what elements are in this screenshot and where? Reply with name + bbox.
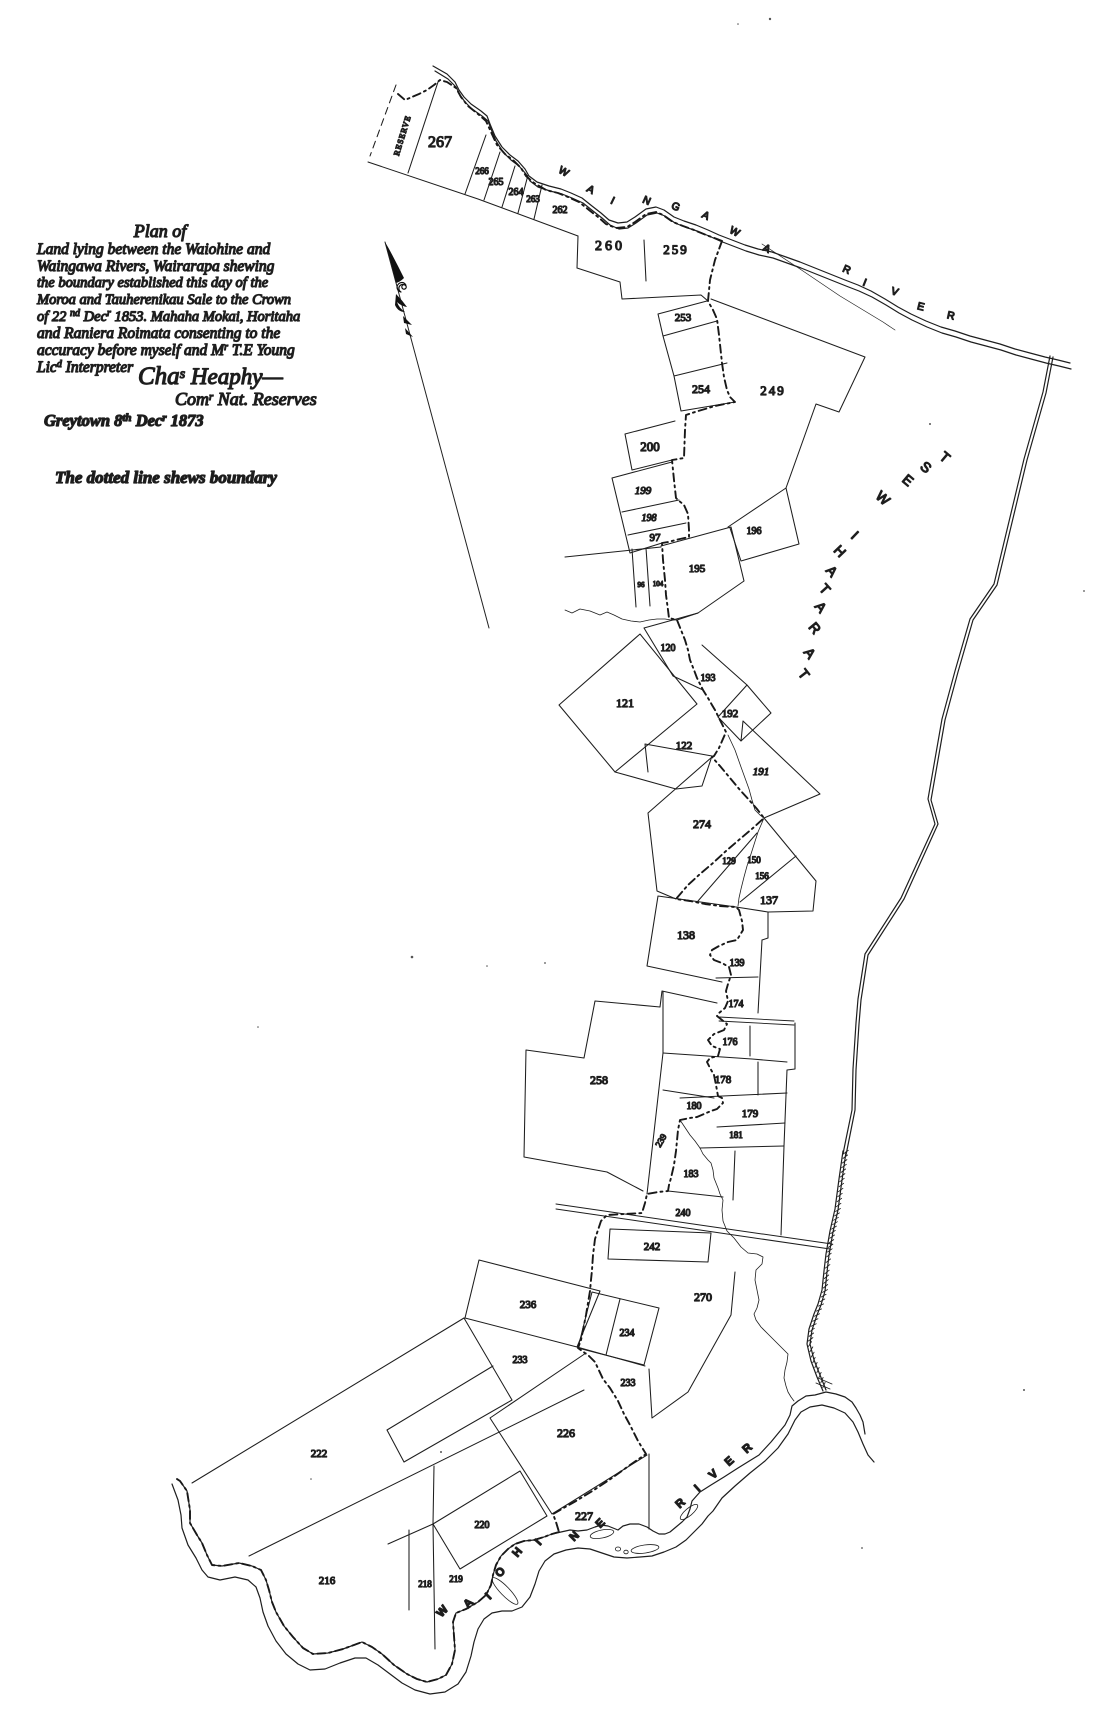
svg-text:234: 234 <box>620 1328 635 1339</box>
svg-text:RESERVE: RESERVE <box>392 114 413 157</box>
svg-text:242: 242 <box>644 1241 661 1253</box>
svg-text:253: 253 <box>675 312 692 324</box>
svg-text:233: 233 <box>621 1378 636 1389</box>
svg-text:R: R <box>841 263 853 277</box>
svg-text:accuracy before myself and Mr: accuracy before myself and Mr T.E Young <box>37 342 295 359</box>
svg-text:W: W <box>435 1604 451 1620</box>
svg-text:129: 129 <box>722 856 736 866</box>
svg-text:of 22 nd Decr 1853. Mahaha Mok: of 22 nd Decr 1853. Mahaha Mokai, Horita… <box>37 308 300 325</box>
svg-text:the boundary established this: the boundary established this day of the <box>37 275 269 291</box>
svg-text:274: 274 <box>693 817 711 831</box>
svg-text:R: R <box>946 309 956 322</box>
svg-text:264: 264 <box>509 187 524 198</box>
svg-text:226: 226 <box>557 1426 575 1440</box>
svg-text:239: 239 <box>653 1132 669 1149</box>
svg-text:178: 178 <box>715 1074 732 1086</box>
svg-text:E: E <box>594 1517 608 1531</box>
svg-text:Plan of: Plan of <box>133 221 189 241</box>
svg-text:200: 200 <box>640 439 660 454</box>
svg-text:A: A <box>462 1597 476 1611</box>
svg-text:183: 183 <box>684 1169 699 1180</box>
svg-text:265: 265 <box>489 177 504 188</box>
svg-text:240: 240 <box>676 1208 691 1219</box>
svg-text:Chas Heaphy—: Chas Heaphy— <box>138 363 283 390</box>
svg-text:180: 180 <box>687 1101 702 1112</box>
svg-text:N: N <box>641 194 653 208</box>
svg-text:T: T <box>816 580 834 597</box>
svg-text:222: 222 <box>311 1448 328 1460</box>
svg-text:A: A <box>585 183 597 197</box>
svg-text:G: G <box>669 200 681 214</box>
svg-text:198: 198 <box>642 513 657 524</box>
svg-text:193: 193 <box>701 673 716 684</box>
svg-text:T: T <box>795 666 813 683</box>
svg-text:270: 270 <box>694 1290 712 1304</box>
svg-text:179: 179 <box>742 1108 759 1120</box>
svg-text:262: 262 <box>553 205 568 216</box>
svg-text:R: R <box>741 1441 756 1456</box>
svg-text:Waingawa Rivers, Wairarapa she: Waingawa Rivers, Wairarapa shewing <box>37 258 275 275</box>
svg-text:104: 104 <box>653 580 664 588</box>
svg-text:97: 97 <box>650 532 662 544</box>
svg-text:Greytown 8th Decr 1873: Greytown 8th Decr 1873 <box>44 411 204 430</box>
svg-text:W: W <box>556 164 571 179</box>
svg-text:A: A <box>823 562 842 580</box>
svg-text:195: 195 <box>689 563 706 575</box>
svg-text:R: R <box>806 619 825 637</box>
svg-text:W: W <box>727 224 741 239</box>
svg-text:219: 219 <box>449 1574 463 1584</box>
svg-text:199: 199 <box>635 485 652 497</box>
svg-text:249: 249 <box>760 383 786 398</box>
svg-text:E: E <box>723 1454 737 1468</box>
svg-text:The dotted line shews boundary: The dotted line shews boundary <box>55 468 277 487</box>
svg-text:Licd Interpreter: Licd Interpreter <box>36 359 134 376</box>
svg-text:A: A <box>812 598 831 616</box>
svg-text:216: 216 <box>319 1575 336 1587</box>
svg-text:259: 259 <box>663 242 689 257</box>
svg-text:176: 176 <box>723 1037 738 1048</box>
svg-text:96: 96 <box>638 581 646 589</box>
svg-text:W: W <box>873 488 894 509</box>
svg-text:267: 267 <box>428 134 452 151</box>
svg-text:Comr Nat. Reserves: Comr Nat. Reserves <box>175 389 317 409</box>
svg-text:T: T <box>937 448 954 466</box>
svg-text:150: 150 <box>747 855 761 865</box>
svg-text:137: 137 <box>760 893 778 907</box>
svg-text:I: I <box>609 195 617 207</box>
svg-text:E: E <box>916 300 926 313</box>
svg-text:156: 156 <box>755 871 769 881</box>
svg-text:and Raniera Roimata consenting: and Raniera Roimata consenting to the <box>37 325 280 342</box>
svg-text:191: 191 <box>753 766 770 778</box>
svg-text:122: 122 <box>676 740 693 752</box>
svg-text:Land lying between the Waiohin: Land lying between the Waiohine and <box>36 241 270 258</box>
svg-text:I: I <box>848 528 862 542</box>
svg-text:A: A <box>801 644 820 662</box>
svg-text:E: E <box>899 471 916 489</box>
svg-text:121: 121 <box>616 696 634 710</box>
svg-text:233: 233 <box>513 1355 528 1366</box>
svg-text:196: 196 <box>747 526 762 537</box>
svg-text:Moroa and Tauherenikau Sale to: Moroa and Tauherenikau Sale to the Crown <box>36 292 291 308</box>
svg-text:H: H <box>510 1546 525 1560</box>
svg-text:227: 227 <box>575 1509 593 1523</box>
svg-text:R: R <box>674 1496 689 1511</box>
svg-text:I: I <box>861 277 868 289</box>
svg-text:H: H <box>831 542 850 560</box>
svg-text:V: V <box>890 285 900 299</box>
svg-text:120: 120 <box>661 643 676 654</box>
svg-text:A: A <box>700 209 712 223</box>
svg-text:139: 139 <box>730 958 745 969</box>
svg-text:220: 220 <box>475 1520 490 1531</box>
svg-text:I: I <box>692 1483 702 1494</box>
svg-text:258: 258 <box>590 1073 608 1087</box>
svg-text:236: 236 <box>520 1299 537 1311</box>
svg-text:S: S <box>917 458 934 476</box>
svg-text:260: 260 <box>595 239 625 254</box>
svg-text:263: 263 <box>526 194 540 204</box>
svg-text:254: 254 <box>692 382 710 396</box>
svg-text:192: 192 <box>722 708 739 720</box>
svg-text:181: 181 <box>729 1130 743 1140</box>
svg-text:218: 218 <box>418 1579 432 1589</box>
svg-text:138: 138 <box>677 928 695 942</box>
svg-text:266: 266 <box>475 166 489 176</box>
svg-text:174: 174 <box>729 999 744 1010</box>
svg-text:N: N <box>568 1530 582 1544</box>
